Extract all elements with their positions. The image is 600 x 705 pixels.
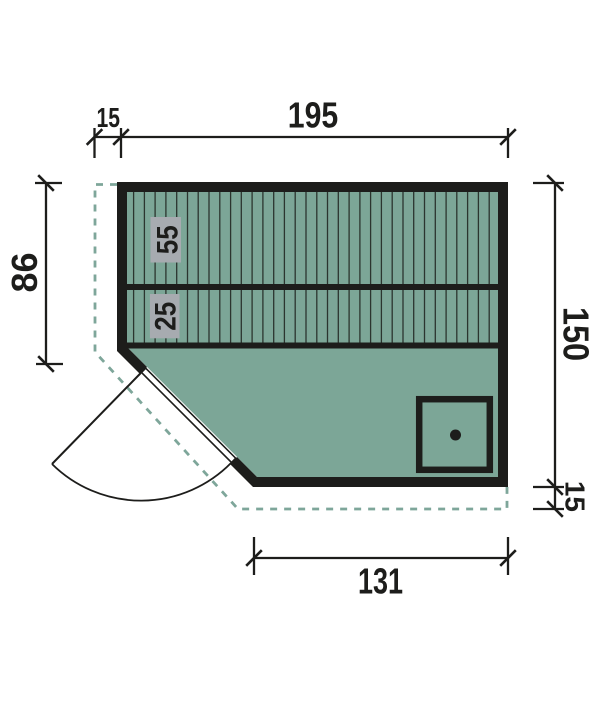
svg-text:55: 55 bbox=[151, 225, 184, 254]
svg-text:25: 25 bbox=[149, 302, 182, 331]
svg-text:195: 195 bbox=[288, 96, 338, 136]
svg-text:86: 86 bbox=[4, 252, 45, 292]
svg-text:15: 15 bbox=[96, 103, 120, 133]
svg-text:15: 15 bbox=[560, 481, 591, 512]
svg-text:150: 150 bbox=[555, 307, 595, 361]
svg-text:131: 131 bbox=[358, 561, 403, 602]
